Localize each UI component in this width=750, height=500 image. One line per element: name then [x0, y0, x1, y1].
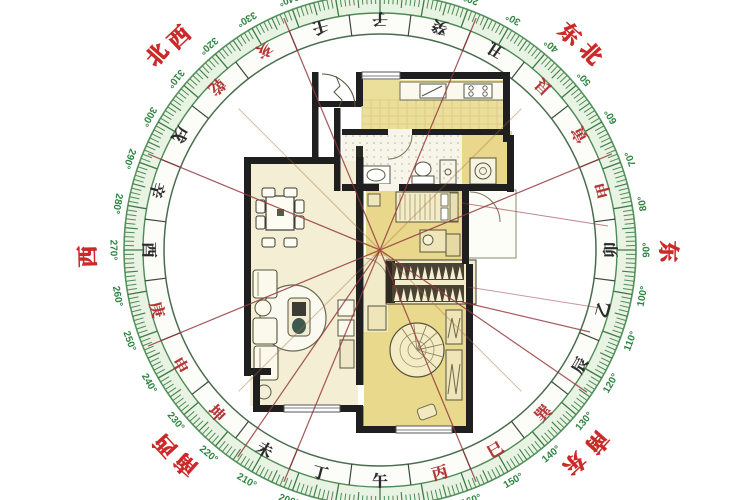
- svg-text:90°: 90°: [642, 242, 653, 257]
- svg-text:270°: 270°: [108, 240, 119, 261]
